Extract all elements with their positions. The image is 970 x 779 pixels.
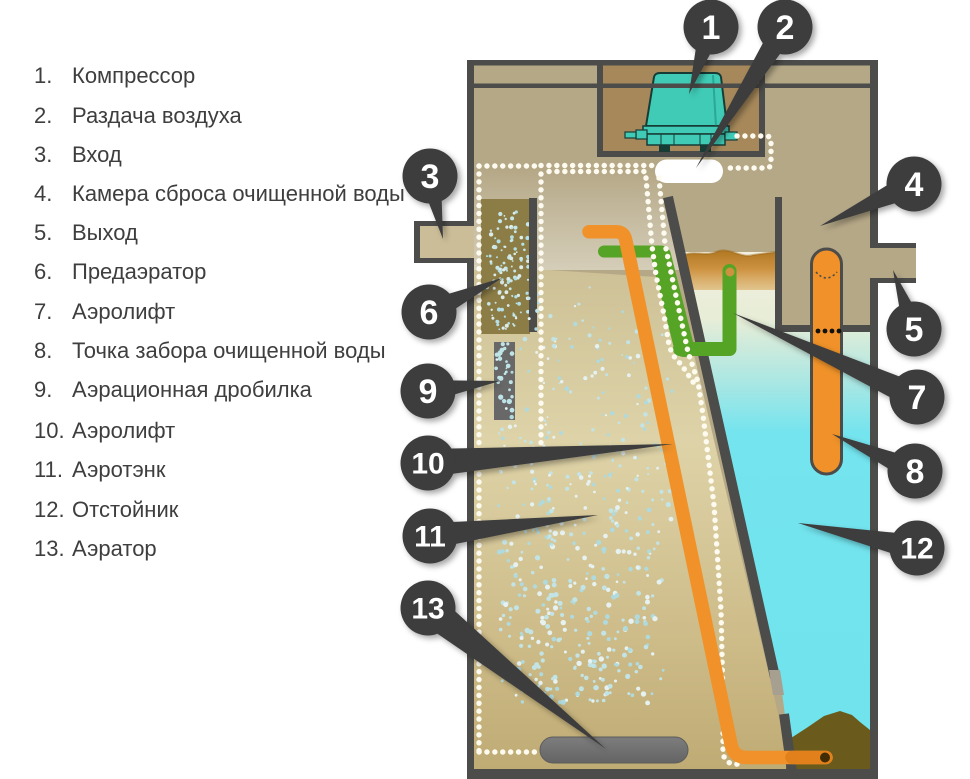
svg-text:13: 13: [411, 593, 444, 626]
svg-text:5: 5: [905, 311, 924, 349]
svg-text:11: 11: [414, 521, 446, 554]
svg-text:4: 4: [905, 166, 924, 204]
svg-text:12: 12: [900, 533, 933, 566]
svg-text:3: 3: [421, 158, 440, 196]
svg-text:6: 6: [420, 294, 439, 332]
svg-text:2: 2: [776, 9, 795, 47]
svg-text:7: 7: [908, 379, 927, 417]
svg-text:10: 10: [411, 448, 444, 481]
svg-text:1: 1: [702, 9, 721, 47]
svg-text:8: 8: [906, 453, 925, 491]
svg-text:9: 9: [419, 373, 438, 411]
